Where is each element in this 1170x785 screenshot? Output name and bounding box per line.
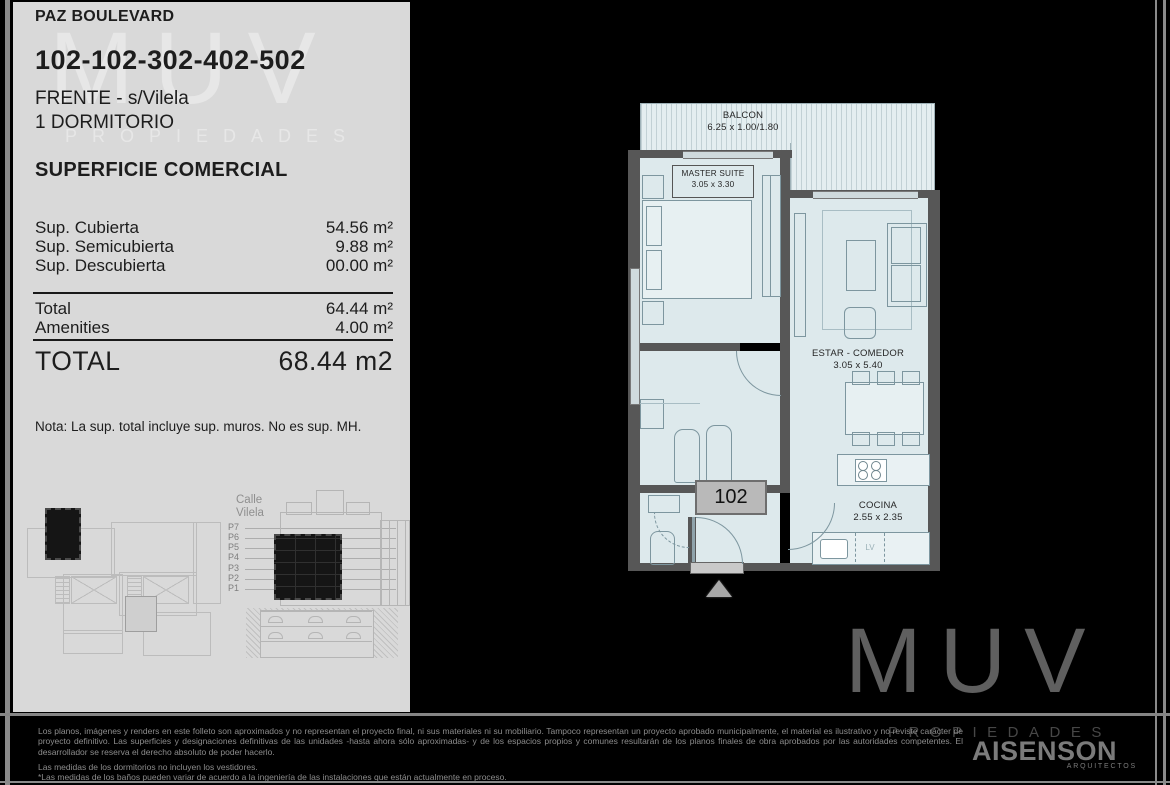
room-dims: 3.05 x 5.40 <box>798 360 918 372</box>
wall <box>640 343 740 351</box>
nightstand <box>642 175 664 199</box>
kitchen-label: COCINA 2.55 x 2.35 <box>823 500 933 523</box>
dining-chair <box>902 371 920 385</box>
bedrooms-label: 1 DORMITORIO <box>35 112 174 134</box>
frame-right-inner <box>1155 0 1157 785</box>
coffee-table <box>846 240 876 291</box>
muv-logo: MUV <box>845 614 1103 709</box>
grand-total-label: TOTAL <box>35 346 120 377</box>
powder-vanity <box>648 495 680 513</box>
subtotal-row-total: Total 64.44 m² <box>35 299 393 319</box>
disclaimer-block: Los planos, imágenes y renders en este f… <box>38 726 963 782</box>
info-panel: MUV PROPIEDADES PAZ BOULEVARD 102-102-30… <box>13 2 410 712</box>
ottoman <box>844 307 876 339</box>
room-name: COCINA <box>823 500 933 512</box>
floor-label: P2 <box>228 573 245 583</box>
balcony-slider-living <box>813 191 918 199</box>
living-label: ESTAR - COMEDOR 3.05 x 5.40 <box>798 348 918 371</box>
dining-chair <box>877 432 895 446</box>
dining-chair <box>852 371 870 385</box>
room-dims: 2.55 x 2.35 <box>823 512 933 524</box>
balcony-slider-master <box>683 151 773 159</box>
floor-label: P3 <box>228 563 245 573</box>
floor-plan: BALCON 6.25 x 1.00/1.80 MASTER SUITE 3.0… <box>628 103 940 603</box>
tv-console <box>794 213 806 337</box>
section-title: SUPERFICIE COMERCIAL <box>35 159 288 182</box>
row-value: 9.88 m² <box>335 237 393 257</box>
row-label: Total <box>35 299 71 319</box>
row-label: Amenities <box>35 318 110 338</box>
unit-number-box: 102 <box>695 480 767 515</box>
floor-label: P1 <box>228 583 245 593</box>
entrance-door-leaf <box>692 517 695 563</box>
row-label: Sup. Descubierta <box>35 256 165 276</box>
row-value: 4.00 m² <box>335 318 393 338</box>
dishwasher-slot: LV <box>855 533 885 562</box>
front-label: FRENTE - s/Vilela <box>35 88 189 110</box>
wardrobe <box>762 175 781 297</box>
disclaimer-line-banos: *Las medidas de los baños pueden variar … <box>38 772 963 782</box>
elevation-diagram: Calle Vilela P7 P6 P5 P4 P3 P2 P1 <box>228 482 413 667</box>
sofa-cushion <box>891 265 921 302</box>
nightstand <box>642 301 664 325</box>
aisenson-logo: AISENSON ARQUITECTOS <box>972 738 1137 770</box>
floor-label: P4 <box>228 552 245 562</box>
aisenson-wordmark: AISENSON <box>972 738 1137 765</box>
row-value: 54.56 m² <box>326 218 393 238</box>
brochure-page: { "colors": { "panel_bg": "#d9d9d9", "pl… <box>0 0 1170 785</box>
room-dims: 3.05 x 3.30 <box>673 180 753 191</box>
kitchen-sink <box>820 539 848 559</box>
room-name: ESTAR - COMEDOR <box>798 348 918 360</box>
site-plan-diagram <box>25 500 223 658</box>
grand-total-value: 68.44 m2 <box>279 346 394 377</box>
floor-label: P7 <box>228 522 245 532</box>
dining-chair <box>852 432 870 446</box>
window-master-west <box>630 268 640 405</box>
sofa-cushion <box>891 227 921 264</box>
pillow <box>646 250 662 290</box>
dining-table <box>845 382 924 435</box>
bidet <box>674 429 700 483</box>
project-title: PAZ BOULEVARD <box>35 8 174 26</box>
frame-right-outer <box>1163 0 1166 785</box>
highlighted-floors-marker <box>274 534 342 600</box>
entrance-arrow-icon <box>706 580 732 597</box>
room-name: BALCON <box>658 110 828 122</box>
master-suite-label: MASTER SUITE 3.05 x 3.30 <box>672 165 754 198</box>
surface-row-semicubierta: Sup. Semicubierta 9.88 m² <box>35 237 393 257</box>
row-label: Sup. Semicubierta <box>35 237 174 257</box>
room-name: MASTER SUITE <box>673 169 753 180</box>
separator-line <box>0 713 1170 716</box>
balcony-area-right <box>790 143 935 191</box>
dining-chair <box>877 371 895 385</box>
subtotal-row-amenities: Amenities 4.00 m² <box>35 318 393 338</box>
disclaimer-paragraph: Los planos, imágenes y renders en este f… <box>38 726 963 757</box>
row-value: 64.44 m² <box>326 299 393 319</box>
wall <box>780 150 790 493</box>
note-text: Nota: La sup. total incluye sup. muros. … <box>35 419 361 434</box>
highlighted-unit-marker <box>45 508 81 560</box>
balcony-label: BALCON 6.25 x 1.00/1.80 <box>658 110 828 133</box>
bathroom-counter-line <box>640 403 700 404</box>
grand-total-row: TOTAL 68.44 m2 <box>35 346 393 377</box>
dining-chair <box>902 432 920 446</box>
unit-numbers: 102-102-302-402-502 <box>35 45 306 76</box>
room-dims: 6.25 x 1.00/1.80 <box>658 122 828 134</box>
disclaimer-line-dormitorios: Las medidas de los dormitorios no incluy… <box>38 762 963 772</box>
surface-row-descubierta: Sup. Descubierta 00.00 m² <box>35 256 393 276</box>
floor-label: P6 <box>228 532 245 542</box>
divider-line-1 <box>33 292 393 294</box>
divider-line-2 <box>33 339 393 341</box>
frame-left <box>5 0 10 785</box>
toilet <box>706 425 732 483</box>
row-value: 00.00 m² <box>326 256 393 276</box>
pillow <box>646 206 662 246</box>
row-label: Sup. Cubierta <box>35 218 139 238</box>
surface-row-cubierta: Sup. Cubierta 54.56 m² <box>35 218 393 238</box>
floor-label: P5 <box>228 542 245 552</box>
